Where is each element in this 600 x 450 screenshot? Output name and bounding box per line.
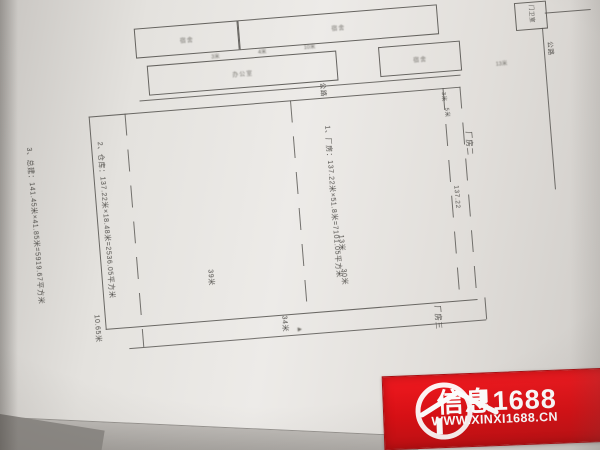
road-right-label: 公路 — [546, 41, 557, 56]
building-box: 宿舍 — [237, 4, 439, 50]
dim-label: 10米 — [303, 42, 315, 51]
road-edge — [484, 297, 487, 319]
building-label: 宿舍 — [413, 54, 428, 64]
road-label: 公路 — [319, 82, 330, 97]
building-label: 宿舍 — [179, 34, 194, 44]
dim-tick: 13米 — [495, 59, 507, 68]
dim-right-cell-b: 30米 — [339, 268, 350, 285]
building-box: 办公室 — [147, 51, 339, 96]
dim-edge-left: 10.65米 — [92, 314, 104, 343]
dim-right-cell-a: 13米 — [336, 234, 347, 251]
building-box: 宿舍 — [134, 20, 240, 58]
watermark-banner: 信息1688 WWW.XINXI1688.CN — [382, 368, 600, 450]
guard-house-label: 门卫室 — [527, 4, 536, 23]
boundary-line — [545, 9, 591, 14]
dim-tick: 3米 — [440, 92, 449, 102]
dim-road-bottom: 34米 — [279, 315, 290, 332]
building-label: 办公室 — [232, 68, 254, 79]
factory3-label: 厂房三 — [432, 305, 445, 330]
dim-label: 4米 — [258, 47, 267, 56]
site-plan-photo: 宿舍 宿舍 办公室 宿舍 3米 4米 10米 公路 3、总建：141.45米×4… — [0, 0, 600, 450]
dim-label: 3米 — [211, 52, 220, 61]
dim-left-cell: 39米 — [205, 269, 216, 286]
arrow-icon: ► — [296, 326, 303, 334]
building-box: 宿舍 — [378, 41, 462, 77]
dim-tick: 5米 — [443, 108, 452, 118]
compound-boundary — [89, 87, 478, 330]
factory2-label: 厂房二 — [463, 131, 476, 156]
area-note-3: 3、总建：141.45米×41.85米=5919.67平方米 — [24, 147, 47, 305]
building-label: 宿舍 — [331, 22, 346, 32]
